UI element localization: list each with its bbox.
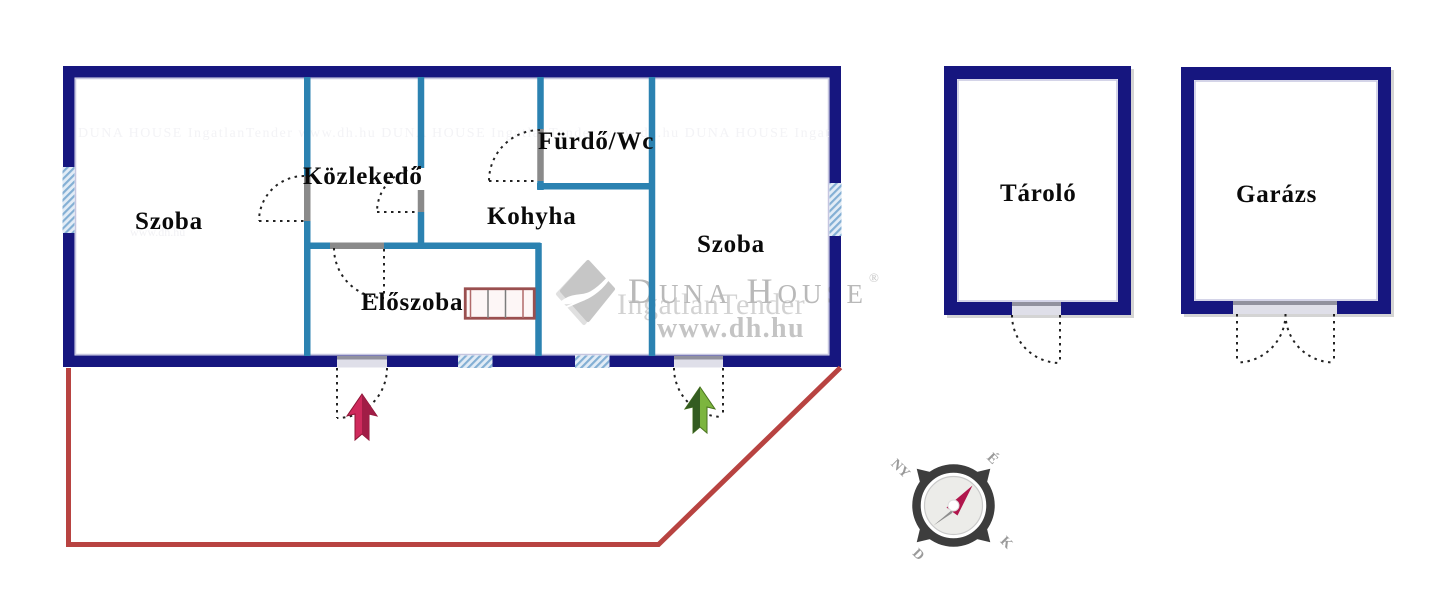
svg-text:K: K: [997, 534, 1015, 552]
svg-text:Előszoba: Előszoba: [361, 289, 463, 316]
svg-text:Szoba: Szoba: [697, 231, 765, 258]
svg-text:Szoba: Szoba: [135, 208, 203, 235]
svg-text:Közlekedő: Közlekedő: [303, 163, 423, 190]
svg-text:®: ®: [869, 270, 879, 285]
svg-text:NY: NY: [888, 457, 913, 482]
svg-text:www.dh.hu: www.dh.hu: [657, 313, 805, 344]
svg-text:É: É: [983, 449, 1002, 468]
svg-text:D: D: [909, 546, 927, 564]
svg-text:Kohyha: Kohyha: [487, 203, 577, 230]
svg-text:Fürdő/Wc: Fürdő/Wc: [538, 128, 654, 155]
svg-text:DUNA HOUSE IngatlanTender www.: DUNA HOUSE IngatlanTender www.dh.hu DUNA…: [78, 126, 900, 141]
svg-text:Tároló: Tároló: [1000, 180, 1077, 207]
svg-text:Garázs: Garázs: [1236, 181, 1317, 208]
